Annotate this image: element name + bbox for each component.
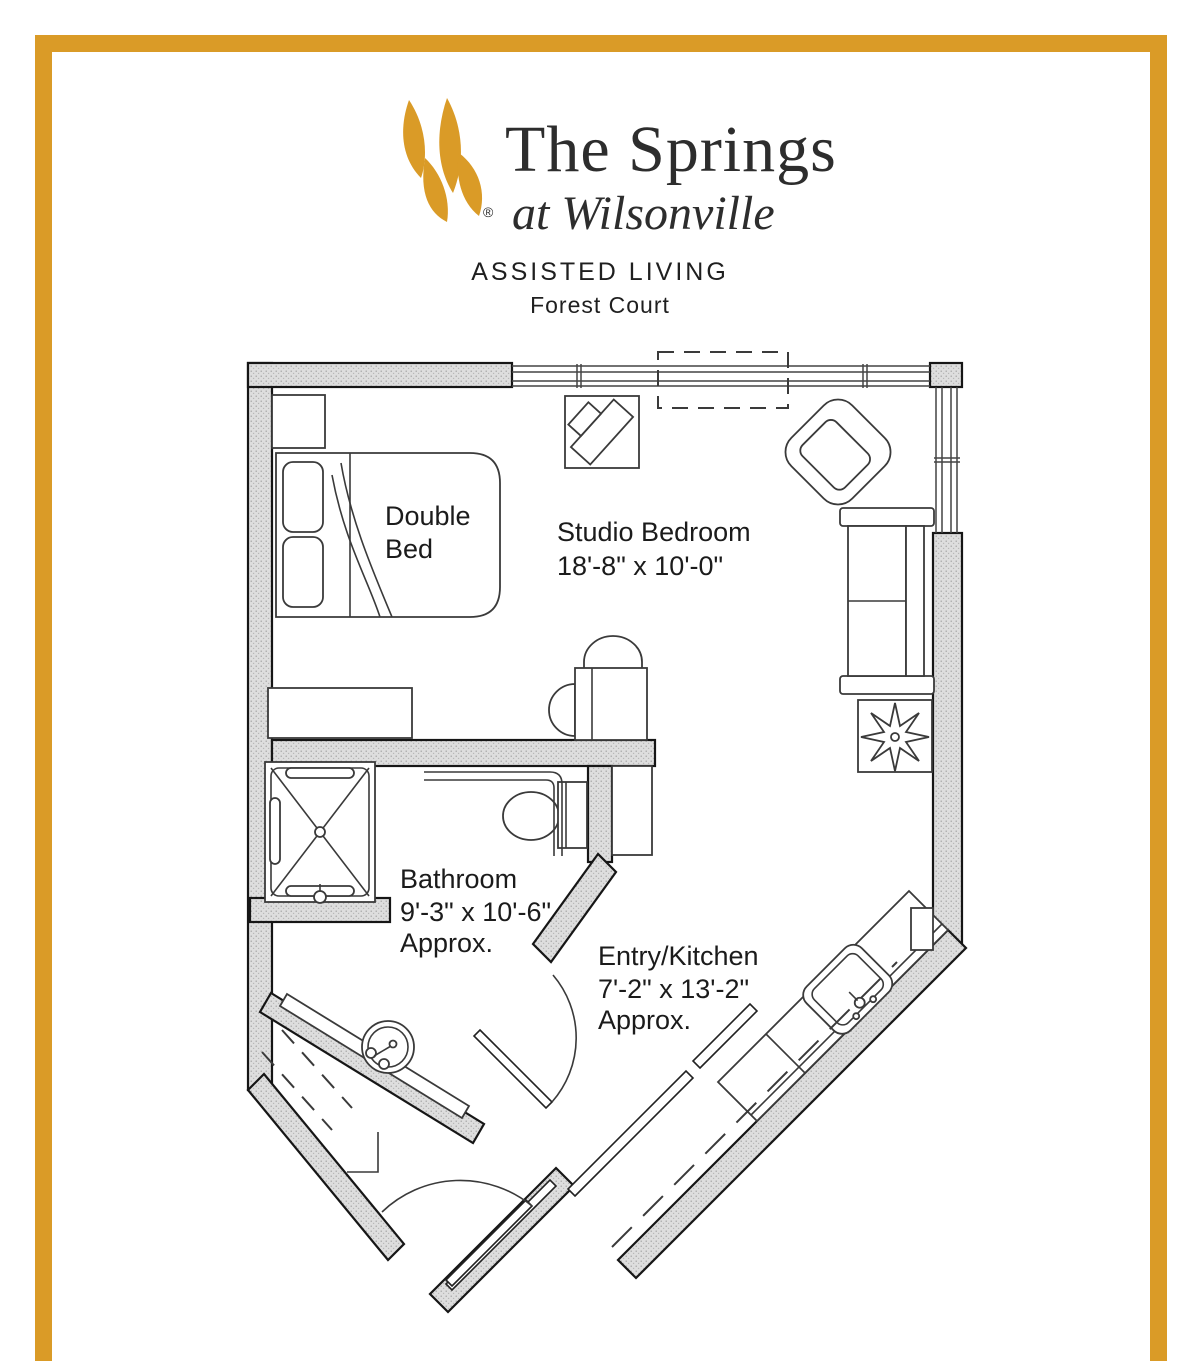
entry-kitchen-dimensions: 7'-2" x 13'-2" xyxy=(598,974,749,1004)
bathroom-approx: Approx. xyxy=(400,928,493,958)
shower xyxy=(265,762,375,903)
entry-door-leaf xyxy=(446,1200,532,1286)
studio-bedroom-label: Studio Bedroom xyxy=(557,517,751,547)
studio-bedroom-dimensions: 18'-8" x 10'-0" xyxy=(557,551,723,581)
vanity xyxy=(280,994,469,1118)
bathroom-door-leaf xyxy=(474,1030,552,1108)
shower-drain xyxy=(315,827,325,837)
chair xyxy=(549,684,575,736)
side-table xyxy=(575,668,647,740)
entry-kitchen-label: Entry/Kitchen xyxy=(598,941,759,971)
faucet xyxy=(379,1059,389,1069)
bathroom-label: Bathroom xyxy=(400,864,517,894)
top-window xyxy=(512,364,930,388)
floor-plan-drawing: Double Bed Studio Bedroom 18'-8" x 10'-0… xyxy=(0,0,1200,1361)
shower-control xyxy=(314,891,326,903)
entry-door-swing xyxy=(382,1180,532,1212)
closet-return-wall xyxy=(347,1132,378,1172)
double-bed-label: Double xyxy=(385,501,471,531)
corridor-partition xyxy=(568,1071,693,1196)
entry-kitchen-approx: Approx. xyxy=(598,1005,691,1035)
grab-bar xyxy=(270,798,280,864)
overhead-dashed-outline xyxy=(658,352,788,408)
grab-bar xyxy=(286,768,354,778)
plant-icon xyxy=(858,700,932,772)
pillow xyxy=(283,537,323,607)
nightstand xyxy=(272,395,325,448)
bathroom-alcove xyxy=(612,766,652,855)
floor-plan-page: The Springs ® at Wilsonville ASSISTED LI… xyxy=(0,0,1200,1361)
armchair xyxy=(777,391,899,513)
table-and-chairs xyxy=(549,636,647,740)
dresser xyxy=(268,688,412,738)
bathroom-dimensions: 9'-3" x 10'-6" xyxy=(400,897,551,927)
toilet xyxy=(503,782,587,848)
pillow xyxy=(283,462,323,532)
bathroom-door-swing xyxy=(552,975,576,1102)
double-bed-label: Bed xyxy=(385,534,433,564)
right-window xyxy=(934,387,960,533)
appliance xyxy=(911,908,933,950)
loveseat xyxy=(840,508,934,694)
